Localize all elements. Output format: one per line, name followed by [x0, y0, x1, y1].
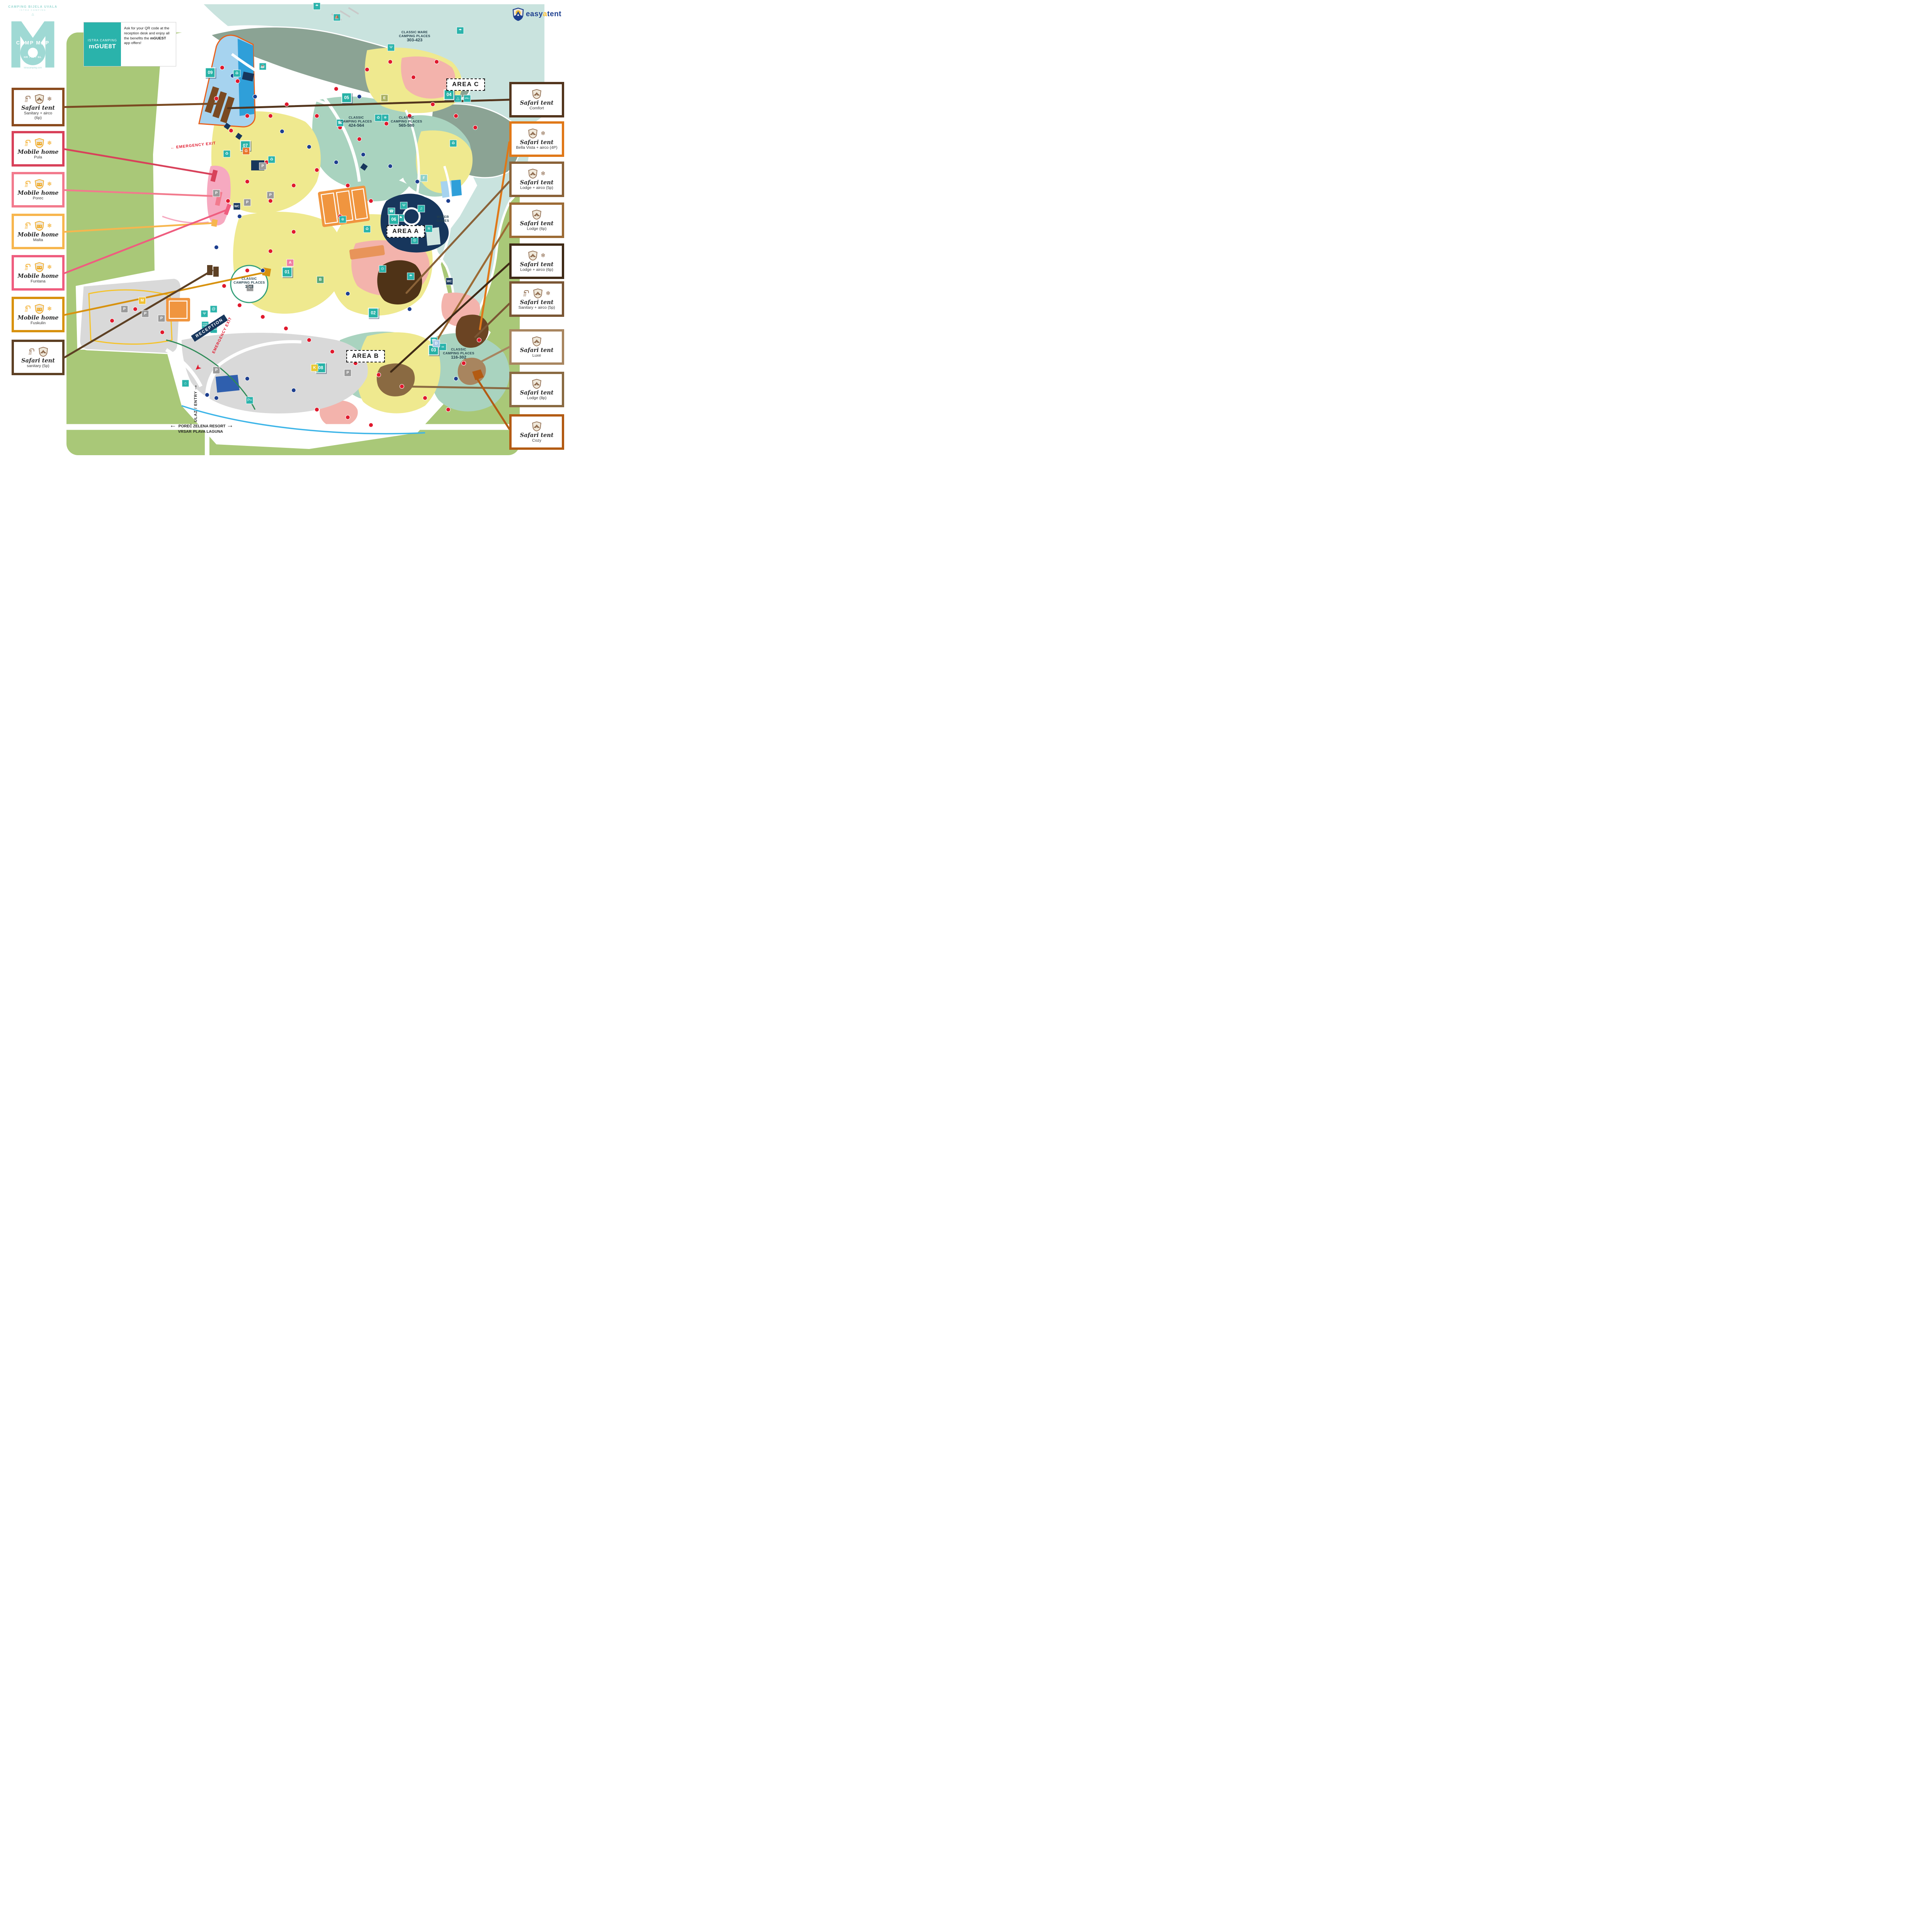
- dance-icon: ♫: [418, 205, 425, 213]
- parking-icon: P: [158, 315, 165, 322]
- red-dot-marker: [268, 199, 273, 203]
- blue-dot-marker: [291, 388, 296, 393]
- red-dot-marker: [330, 349, 335, 354]
- blue-dot-marker: [415, 179, 420, 184]
- coffee-icon: ☕: [259, 63, 267, 70]
- parking-icon: P: [213, 190, 220, 197]
- red-dot-marker: [369, 423, 373, 427]
- red-dot-marker: [284, 326, 288, 331]
- map-badge-01: 01: [282, 267, 293, 277]
- area-label-area-a: AREA A: [386, 225, 425, 238]
- red-dot-marker: [384, 121, 389, 126]
- tennis-icon: ⊕: [339, 216, 347, 223]
- region-label: CLASSICCAMPING PLACES1-13: [233, 277, 265, 290]
- direction-zelena-plava: ZELENA RESORT →PLAVA LAGUNA: [193, 421, 234, 434]
- red-dot-marker: [307, 338, 311, 342]
- red-dot-marker: [268, 114, 273, 118]
- parking-icon: P: [244, 199, 251, 206]
- restaurant-icon: Ψ: [388, 44, 395, 51]
- red-dot-marker: [446, 407, 451, 412]
- red-dot-marker: [423, 396, 427, 400]
- area-label-area-c: AREA C: [446, 78, 485, 91]
- red-dot-marker: [237, 303, 242, 308]
- direction-porec-vrsar: ← POREČVRSAR: [170, 421, 192, 434]
- red-dot-marker: [345, 183, 350, 188]
- region-label: CLASSIC MARECAMPING PLACES303-423: [399, 30, 430, 43]
- restaurant-icon: Ψ: [201, 310, 208, 318]
- map-badge-09: 09: [205, 68, 216, 78]
- red-dot-marker: [235, 79, 240, 83]
- blue-dot-marker: [357, 94, 362, 99]
- blue-dot-marker: [205, 393, 209, 397]
- red-dot-marker: [365, 67, 369, 72]
- parking-icon: P: [267, 192, 274, 199]
- red-dot-marker: [214, 96, 219, 101]
- map-letter-badge-K: K: [311, 364, 318, 372]
- red-dot-marker: [369, 199, 373, 203]
- umbrella-icon: ☂: [313, 3, 321, 10]
- red-dot-marker: [245, 179, 250, 184]
- boat-icon: ⛵: [333, 14, 341, 21]
- red-dot-marker: [473, 125, 478, 130]
- recycle-icon: ♻: [233, 70, 241, 77]
- red-dot-marker: [315, 168, 319, 172]
- camp-map-page: CAMPING BIJELA UVALA ISTRA CAMPING △ CAM…: [0, 0, 565, 455]
- map-badge-04: 04: [444, 90, 454, 100]
- red-dot-marker: [222, 284, 226, 288]
- playground-icon: △: [454, 95, 462, 102]
- wc-icon: WC: [446, 278, 453, 285]
- blue-dot-marker: [454, 376, 458, 381]
- parking-icon: P: [121, 306, 128, 313]
- boat-parking-icon: P≈: [246, 397, 253, 404]
- camper-icon: ⌂: [182, 380, 189, 387]
- blue-dot-marker: [334, 160, 338, 165]
- blue-dot-marker: [407, 307, 412, 311]
- label-ulaz-entry: ULAZ / ENTRY: [194, 391, 198, 422]
- blue-dot-marker: [361, 152, 366, 157]
- red-dot-marker: [284, 102, 289, 107]
- region-label: CLASSICCAMPING PLACES565-580: [391, 116, 422, 129]
- red-dot-marker: [400, 384, 404, 389]
- parking-icon: P: [259, 163, 267, 170]
- map-badge-05: 05: [342, 93, 352, 103]
- recycle-icon: ♻: [450, 140, 457, 147]
- beach-umbrella-icon: ☂: [457, 27, 464, 34]
- label--emergency-exit: ← EMERGENCY EXIT: [170, 141, 216, 150]
- parking-icon: P: [213, 367, 220, 374]
- blue-dot-marker: [260, 268, 265, 273]
- map-overlay: ☂⛵☕♻♻♻♻❄♻♻☎☎☎ΨΨΨ@CASH POINTCHANGE△GRILL☂…: [0, 0, 565, 455]
- red-dot-marker: [434, 60, 439, 64]
- recycle-icon: ♻: [268, 156, 276, 163]
- map-letter-badge-E: E: [381, 95, 388, 102]
- blue-dot-marker: [307, 145, 311, 149]
- red-dot-marker: [454, 114, 458, 118]
- entry-arrow-icon: ↑: [194, 383, 198, 391]
- parking-icon: P: [142, 310, 149, 318]
- emergency-exit-arrow-icon: ➤: [193, 363, 202, 373]
- blue-dot-marker: [245, 376, 250, 381]
- recycle-icon: ♻: [375, 114, 382, 122]
- beach-umbrella-icon: ☂: [407, 273, 415, 280]
- snowflake-icon: ❄: [382, 114, 389, 122]
- blue-dot-marker: [253, 94, 257, 99]
- parking-icon: P: [344, 369, 352, 377]
- red-dot-marker: [245, 114, 250, 118]
- recycle-icon: ♻: [223, 150, 231, 158]
- red-dot-marker: [260, 315, 265, 319]
- red-dot-marker: [229, 128, 233, 133]
- red-dot-marker: [291, 183, 296, 188]
- red-dot-marker: [133, 307, 138, 311]
- red-dot-marker: [315, 114, 319, 118]
- blue-dot-marker: [280, 129, 284, 134]
- table-tennis-icon: ⊙: [379, 265, 386, 273]
- red-dot-marker: [357, 137, 362, 141]
- area-label-area-b: AREA B: [346, 350, 385, 362]
- red-dot-marker: [411, 75, 416, 80]
- recycle-icon: ♻: [364, 226, 371, 233]
- red-dot-marker: [334, 87, 338, 91]
- red-dot-marker: [268, 249, 273, 253]
- region-label: WATERGAMES: [437, 215, 449, 223]
- red-dot-marker: [477, 338, 481, 342]
- grill-icon: GRILL: [464, 95, 471, 102]
- map-letter-badge-F: F: [420, 175, 428, 182]
- map-badge-06: 06: [389, 214, 399, 225]
- at-icon: @: [210, 306, 218, 313]
- red-dot-marker: [376, 372, 381, 377]
- red-dot-marker: [110, 318, 114, 323]
- map-letter-badge-B: B: [317, 276, 324, 284]
- lifering-icon: ◎: [411, 237, 418, 244]
- blue-dot-marker: [237, 214, 242, 219]
- red-dot-marker: [226, 199, 230, 203]
- blue-dot-marker: [214, 396, 219, 400]
- red-dot-marker: [430, 102, 435, 107]
- region-label: CLASSICCAMPING PLACES424-564: [340, 116, 372, 129]
- red-dot-marker: [291, 230, 296, 234]
- map-letter-badge-G: G: [243, 148, 250, 155]
- blue-dot-marker: [345, 291, 350, 296]
- red-dot-marker: [245, 268, 250, 273]
- blue-dot-marker: [446, 199, 451, 203]
- region-label: CLASSICCAMPING PLACES116-302: [443, 347, 474, 361]
- map-letter-badge-D: D: [433, 340, 440, 347]
- red-dot-marker: [160, 330, 165, 335]
- map-letter-badge-A: A: [287, 259, 294, 267]
- red-dot-marker: [345, 415, 350, 420]
- map-badge-02: 02: [368, 308, 379, 318]
- blue-dot-marker: [388, 164, 393, 168]
- red-dot-marker: [220, 65, 224, 70]
- red-dot-marker: [388, 60, 393, 64]
- pool-icon: ≋: [425, 225, 433, 233]
- red-dot-marker: [315, 407, 319, 412]
- restaurant-icon: Ψ: [400, 202, 408, 209]
- red-dot-marker: [461, 361, 466, 366]
- map-letter-badge-M: M: [139, 297, 146, 304]
- wc-icon: WC: [233, 203, 241, 210]
- blue-dot-marker: [214, 245, 219, 250]
